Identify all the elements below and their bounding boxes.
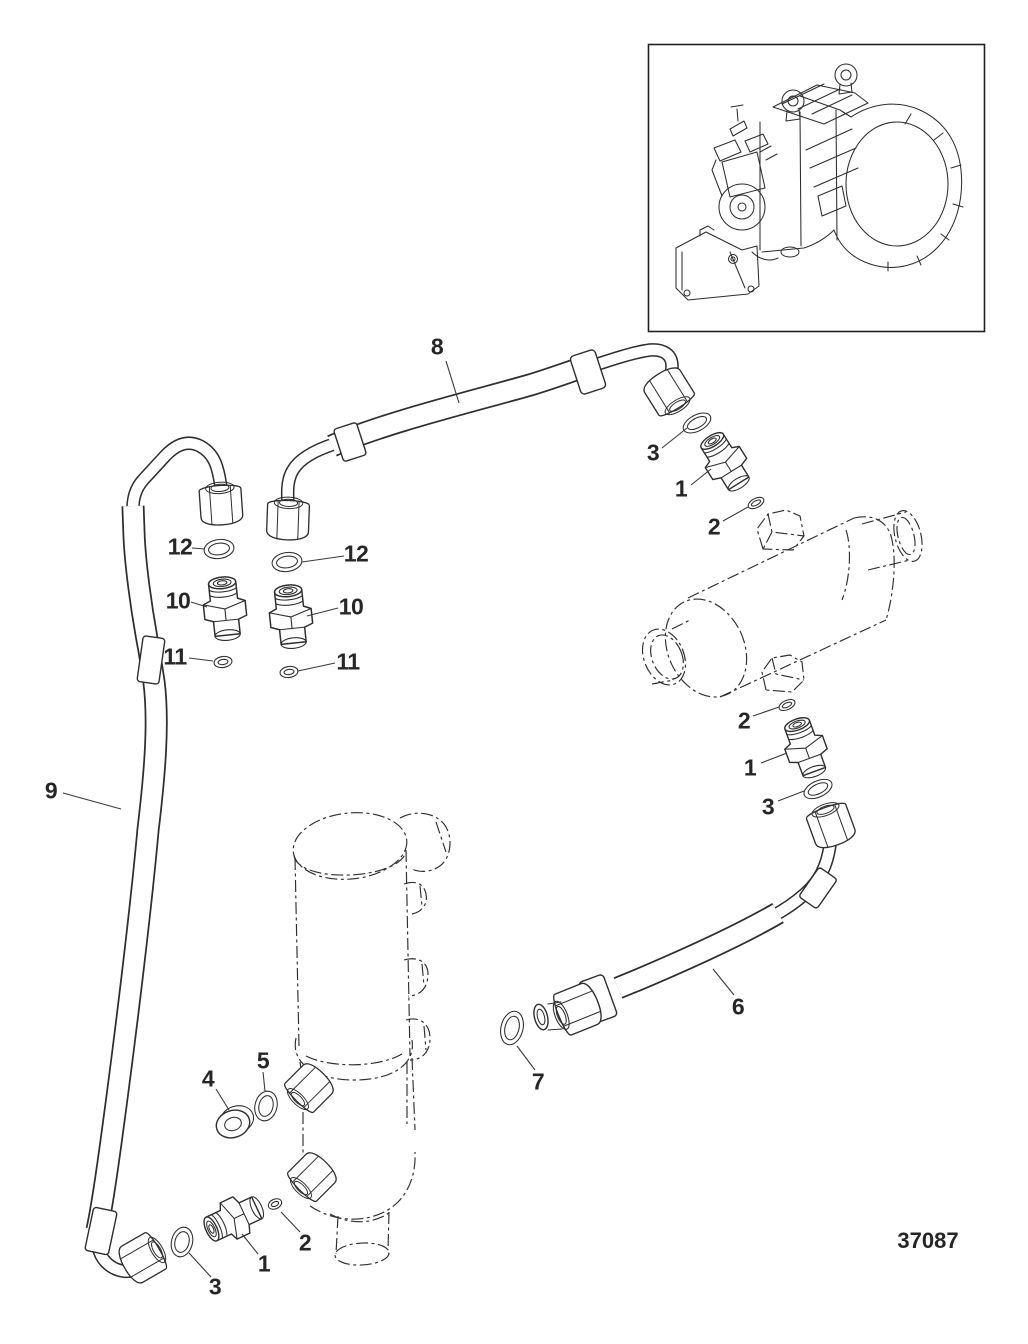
hose-9 (97, 443, 221, 1271)
hose-ferrules (85, 349, 838, 1255)
o-ring-11-right (279, 665, 298, 678)
callout-oring-11-left: 11 (163, 644, 186, 671)
nut-hose9-top (199, 481, 244, 527)
o-ring-11-left (213, 655, 232, 668)
fitting-1-bottom (198, 1188, 270, 1250)
callout-oring-2-bottom: 2 (299, 1230, 311, 1257)
drawing-number: 37087 (897, 1228, 958, 1254)
nut-hose6-top (804, 797, 858, 851)
nut-cylinder-lower (283, 1148, 341, 1206)
callout-oring-3-bottom: 3 (209, 1274, 221, 1301)
nut-hose9-bottom (114, 1229, 172, 1287)
callout-oring-2-mid: 2 (738, 708, 750, 735)
callout-oring-3-mid: 3 (762, 794, 774, 821)
nut-hose8-left (266, 496, 309, 540)
diagram-canvas (0, 0, 1028, 1344)
o-ring-3-bottom (168, 1225, 196, 1259)
engine-inset (649, 45, 985, 332)
tube-nuts (114, 363, 857, 1286)
callout-fitting-10-left: 10 (166, 588, 191, 615)
fitting-10-right (267, 583, 315, 651)
engine-illustration (676, 64, 963, 300)
callout-oring-7: 7 (532, 1069, 544, 1096)
callout-hose-8: 8 (431, 334, 443, 361)
callout-hose-6: 6 (732, 994, 744, 1021)
fitting-1-mid-right (776, 713, 834, 784)
o-ring-2-bottom (267, 1197, 284, 1212)
o-ring-2-mid (777, 697, 796, 713)
callout-oring-12-right: 12 (344, 541, 369, 568)
connector-fittings (198, 426, 835, 1250)
o-ring-12-left (203, 538, 235, 561)
fitting-10-left (201, 575, 249, 643)
callout-oring-3-top: 3 (647, 440, 659, 467)
o-ring-12-right (271, 551, 303, 574)
nut-hose8-right (640, 363, 698, 421)
nut-cylinder-upper (280, 1059, 338, 1117)
o-rings (168, 409, 835, 1259)
callout-oring-11-right: 11 (336, 649, 359, 676)
leader-lines (63, 361, 804, 1277)
transmission-oil-cooler-cylinder (635, 508, 927, 711)
parts-diagram-page: 8 3 1 2 2 1 3 6 7 12 10 11 12 10 11 9 5 … (0, 0, 1028, 1344)
o-ring-5 (252, 1089, 281, 1123)
callout-hose-9: 9 (45, 778, 57, 805)
callout-oring-5: 5 (257, 1048, 269, 1075)
fitting-1-top-right (692, 426, 758, 499)
callout-oring-2-top: 2 (708, 514, 720, 541)
callout-fitting-1-bottom: 1 (258, 1251, 270, 1278)
callout-fitting-1-top: 1 (675, 476, 687, 503)
o-ring-3-mid (801, 775, 835, 802)
o-ring-7 (497, 1009, 527, 1047)
hose-6 (618, 845, 830, 988)
callout-fitting-1-mid: 1 (744, 755, 756, 782)
o-ring-3-top (680, 409, 714, 437)
o-ring-2-top (746, 495, 765, 511)
plug-4 (212, 1102, 258, 1143)
callout-plug-4: 4 (202, 1066, 214, 1093)
callout-fitting-10-right: 10 (339, 594, 364, 621)
callout-oring-12-left: 12 (168, 534, 193, 561)
